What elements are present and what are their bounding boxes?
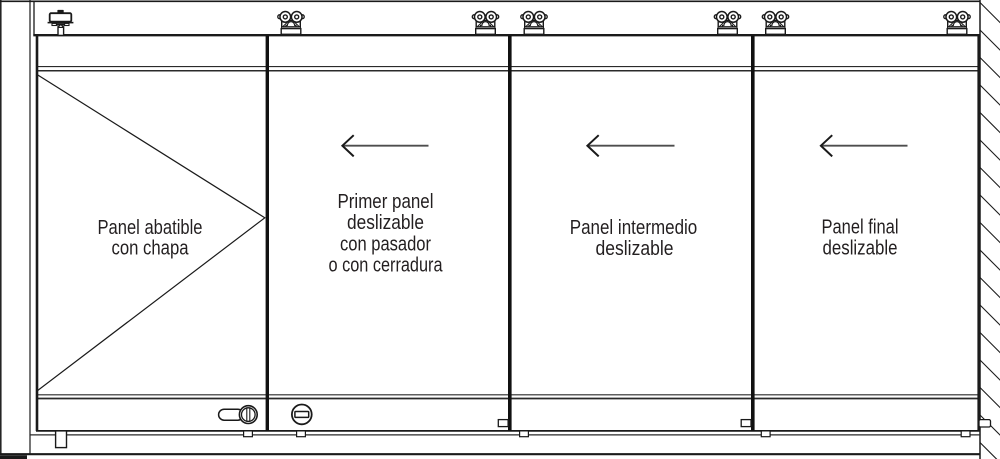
svg-text:deslizable: deslizable (347, 212, 424, 234)
svg-text:Primer panel: Primer panel (338, 191, 434, 213)
svg-text:con pasador: con pasador (340, 233, 431, 255)
svg-text:Panel abatible: Panel abatible (98, 217, 203, 239)
svg-text:o con cerradura: o con cerradura (329, 254, 444, 276)
svg-text:deslizable: deslizable (823, 238, 898, 260)
svg-text:Panel final: Panel final (822, 217, 899, 239)
svg-text:con chapa: con chapa (112, 238, 190, 260)
svg-text:Panel intermedio: Panel intermedio (570, 217, 698, 239)
svg-text:deslizable: deslizable (596, 238, 674, 260)
